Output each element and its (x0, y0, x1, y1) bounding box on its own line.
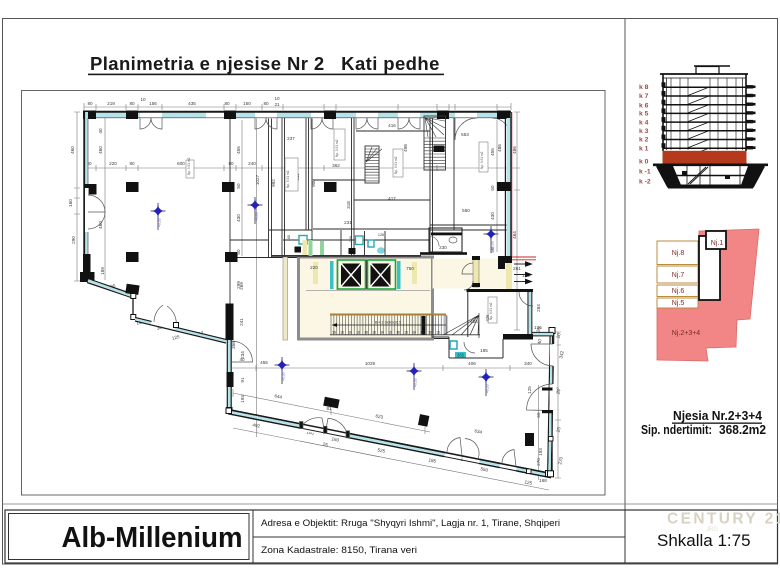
svg-text:219: 219 (107, 101, 115, 106)
svg-text:16: 16 (332, 331, 336, 335)
svg-text:CENTURY 21: CENTURY 21 (667, 511, 780, 528)
svg-text:k 3: k 3 (639, 128, 649, 135)
svg-text:k -2: k -2 (639, 179, 651, 186)
svg-text:16: 16 (372, 331, 376, 335)
svg-text:Zona Kadastrale: 8150, Tirana: Zona Kadastrale: 8150, Tirana veri (261, 545, 417, 555)
svg-text:185: 185 (480, 348, 488, 353)
svg-text:435: 435 (188, 101, 196, 106)
svg-text:16: 16 (340, 331, 344, 335)
svg-text:16: 16 (396, 331, 400, 335)
svg-text:416: 416 (388, 123, 396, 128)
svg-text:430: 430 (236, 214, 241, 222)
svg-text:460: 460 (70, 146, 75, 154)
svg-text:Np. 9.91 m2: Np. 9.91 m2 (480, 151, 484, 169)
svg-text:241: 241 (239, 318, 244, 326)
svg-text:+0.00: +0.00 (158, 218, 162, 227)
svg-text:Nj.5: Nj.5 (672, 300, 685, 307)
svg-text:193: 193 (538, 448, 543, 456)
svg-text:80: 80 (129, 101, 135, 106)
svg-text:B-4.1 9x30x16.5: B-4.1 9x30x16.5 (375, 321, 401, 325)
svg-text:16: 16 (420, 331, 424, 335)
svg-text:+0.00: +0.00 (414, 378, 418, 387)
svg-text:k 7: k 7 (639, 93, 649, 100)
svg-text:230: 230 (439, 245, 447, 250)
svg-text:168: 168 (539, 478, 547, 483)
svg-text:Np. 9.91 m2: Np. 9.91 m2 (394, 156, 398, 174)
svg-text:284: 284 (536, 304, 541, 312)
svg-text:16: 16 (404, 331, 408, 335)
svg-text:269: 269 (239, 282, 244, 290)
svg-text:50: 50 (236, 183, 241, 189)
svg-text:+0.00: +0.00 (282, 372, 286, 381)
svg-text:16: 16 (380, 331, 384, 335)
svg-text:270: 270 (536, 458, 541, 466)
svg-text:k 2: k 2 (639, 137, 649, 144)
svg-text:Planimetria e njesise Nr 2 K: Planimetria e njesise Nr 2 Kati pedhe (90, 53, 440, 74)
svg-text:600: 600 (177, 161, 185, 166)
svg-text:189: 189 (100, 267, 105, 275)
svg-text:80: 80 (129, 161, 135, 166)
svg-text:k 5: k 5 (639, 111, 649, 118)
svg-text:261: 261 (513, 266, 521, 271)
svg-text:193: 193 (240, 395, 245, 403)
svg-text:498: 498 (403, 144, 408, 152)
svg-text:455: 455 (260, 360, 268, 365)
svg-text:318: 318 (346, 201, 351, 209)
svg-text:10: 10 (274, 96, 280, 101)
svg-text:Nj.1: Nj.1 (711, 240, 724, 247)
svg-text:+0.00: +0.00 (255, 212, 259, 221)
svg-text:486: 486 (512, 146, 517, 154)
svg-text:Np. 9.91 m2: Np. 9.91 m2 (187, 157, 191, 175)
svg-text:365: 365 (457, 353, 465, 358)
svg-text:16: 16 (436, 331, 440, 335)
svg-text:16: 16 (428, 331, 432, 335)
svg-text:362: 362 (332, 163, 340, 168)
svg-text:40: 40 (98, 128, 103, 134)
svg-text:16: 16 (364, 331, 368, 335)
svg-text:16: 16 (356, 331, 360, 335)
svg-text:237: 237 (287, 136, 295, 141)
svg-text:k 4: k 4 (639, 120, 649, 127)
svg-text:290: 290 (71, 236, 76, 244)
svg-text:160: 160 (287, 235, 291, 241)
svg-text:16: 16 (388, 331, 392, 335)
svg-text:430: 430 (490, 212, 495, 220)
svg-text:486: 486 (497, 144, 502, 152)
svg-text:220: 220 (109, 161, 117, 166)
svg-text:220: 220 (310, 265, 318, 270)
svg-text:Nj.8: Nj.8 (672, 250, 685, 257)
svg-text:Adresa e Objektit: Rruga "Shyq: Adresa e Objektit: Rruga "Shyqyri Ishmi"… (261, 518, 560, 528)
svg-text:1027: 1027 (255, 174, 260, 185)
svg-text:460: 460 (98, 146, 103, 154)
svg-text:Np. 9.91 m2: Np. 9.91 m2 (335, 139, 339, 157)
svg-text:Np. 9.91 m2: Np. 9.91 m2 (286, 170, 290, 188)
svg-text:455: 455 (236, 146, 241, 154)
svg-text:553: 553 (461, 132, 469, 137)
svg-text:50: 50 (490, 185, 495, 191)
svg-text:Nj.7: Nj.7 (672, 272, 685, 279)
svg-text:Nj.2+3+4: Nj.2+3+4 (672, 330, 701, 337)
svg-text:406: 406 (468, 361, 476, 366)
svg-text:21: 21 (274, 102, 280, 107)
svg-text:+0.00: +0.00 (486, 384, 490, 393)
svg-text:240: 240 (248, 161, 256, 166)
svg-text:+0.00: +0.00 (491, 241, 495, 250)
svg-text:k 8: k 8 (639, 84, 649, 91)
svg-text:125: 125 (527, 386, 532, 394)
svg-text:55: 55 (536, 412, 541, 418)
svg-text:160: 160 (68, 199, 73, 207)
svg-text:550: 550 (462, 208, 470, 213)
svg-text:368.2m2: 368.2m2 (719, 423, 766, 437)
svg-text:1029: 1029 (365, 361, 376, 366)
svg-text:340: 340 (524, 361, 532, 366)
svg-text:80: 80 (228, 161, 234, 166)
svg-text:426: 426 (485, 314, 490, 322)
svg-text:Sip. ndertimit:: Sip. ndertimit: (641, 423, 712, 437)
svg-text:Alb-Millenium: Alb-Millenium (62, 522, 243, 554)
svg-text:91: 91 (240, 377, 245, 383)
svg-text:80: 80 (263, 101, 269, 106)
svg-text:126: 126 (378, 233, 384, 237)
svg-text:234: 234 (240, 351, 245, 359)
svg-text:146: 146 (349, 236, 353, 242)
svg-text:80: 80 (224, 101, 230, 106)
svg-text:80: 80 (87, 101, 93, 106)
svg-text:150: 150 (243, 101, 251, 106)
svg-text:k -1: k -1 (639, 169, 651, 176)
svg-text:16: 16 (412, 331, 416, 335)
svg-text:Shkalla 1:75: Shkalla 1:75 (657, 531, 751, 550)
svg-text:16: 16 (348, 331, 352, 335)
svg-text:k 0: k 0 (639, 159, 649, 166)
svg-text:k 1: k 1 (639, 146, 649, 153)
svg-text:10: 10 (140, 97, 146, 102)
svg-text:750: 750 (406, 266, 414, 271)
svg-text:156: 156 (149, 101, 157, 106)
svg-text:455: 455 (490, 148, 495, 156)
svg-text:Nj.6: Nj.6 (672, 288, 685, 295)
svg-text:k 6: k 6 (639, 103, 649, 110)
svg-text:464: 464 (512, 231, 517, 239)
svg-text:Njesia Nr.2+3+4: Njesia Nr.2+3+4 (673, 408, 763, 423)
